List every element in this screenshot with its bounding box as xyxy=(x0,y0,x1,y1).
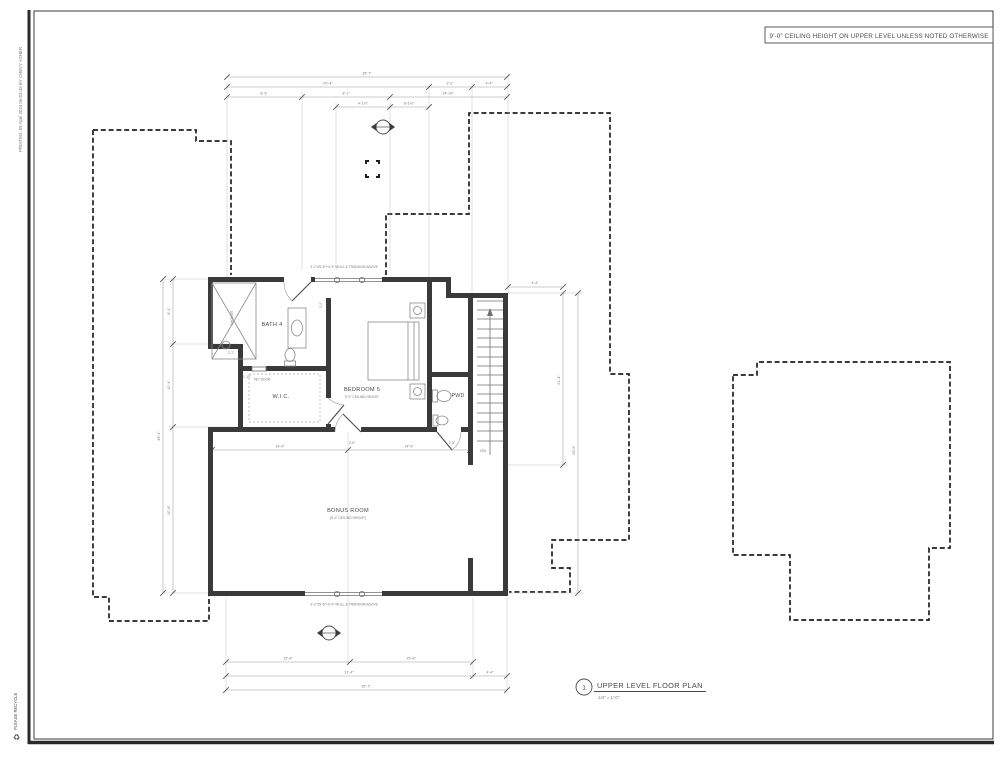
drawing-sheet: 9'-0" CEILING HEIGHT ON UPPER LEVEL UNLE… xyxy=(0,0,1000,768)
title-text: UPPER LEVEL FLOOR PLAN xyxy=(597,681,703,690)
dim-label: 10'-4" xyxy=(167,380,171,390)
wall-top-jamb xyxy=(311,277,315,282)
bath-vanity xyxy=(288,308,306,348)
room-label-bedroom5: BEDROOM 5 xyxy=(344,387,380,393)
stair-dn-label: DN xyxy=(480,448,486,453)
dim-label: 4'-4" xyxy=(531,281,539,285)
dim-label: 2'-2" xyxy=(319,302,323,308)
wall-stair-west xyxy=(468,293,473,444)
wall-bath-south-b xyxy=(266,366,328,371)
dim-label: 14'-10" xyxy=(442,92,454,96)
wall-landing-south xyxy=(468,591,508,596)
dim-label: 35'-7" xyxy=(362,72,372,76)
wall-top-bedroom xyxy=(382,277,450,282)
interior-dimension-row: 14'-0" 14'-6" xyxy=(209,445,473,453)
window-label-bottom: 3'-2"X5'-6"+4'-9" MULL & TRANSOM ABOVE xyxy=(310,603,379,607)
dashed-roof-outline xyxy=(93,113,629,621)
window-bottom-assembly: 3'-2"X5'-6"+4'-9" MULL & TRANSOM ABOVE xyxy=(305,591,382,606)
pet-door-label: PET DOOR xyxy=(254,378,271,382)
room-labels: BATH 4 W.I.C. BEDROOM 5 9'-0" CEILING HE… xyxy=(262,322,465,520)
wall-bath-south-a xyxy=(238,366,252,371)
attic-access-symbol xyxy=(366,161,379,177)
dim-label: 4'-1½" xyxy=(358,102,369,106)
title-block: 1 UPPER LEVEL FLOOR PLAN 1/4" = 1'-0" xyxy=(576,679,706,700)
wall-step-upper xyxy=(208,344,242,349)
wall-bonus-north-a xyxy=(243,427,335,432)
dim-label: 20'-4" xyxy=(323,82,333,86)
dim-label: 14'-0" xyxy=(275,445,285,449)
dim-label: 2'-8" xyxy=(449,441,455,445)
staircase: DN xyxy=(477,301,503,455)
ceiling-note-text: 9'-0" CEILING HEIGHT ON UPPER LEVEL UNLE… xyxy=(769,33,988,40)
pwd-sink xyxy=(433,415,448,426)
dim-label: 2'-8" xyxy=(349,441,355,445)
room-label-wic: W.I.C. xyxy=(272,394,289,400)
bath-toilet xyxy=(285,349,296,367)
dim-label: 8'-3" xyxy=(260,92,268,96)
wall-wic-west xyxy=(238,344,243,432)
dim-label: 4'-4" xyxy=(486,671,494,675)
wall-bonus-south-b xyxy=(382,591,473,596)
dim-label: 35'-7" xyxy=(361,685,371,689)
walls xyxy=(208,277,508,596)
recycle-icon: ♻ xyxy=(13,733,20,742)
wic-door xyxy=(328,398,344,424)
pwd-toilet xyxy=(433,390,452,402)
dim-label: 20'-8" xyxy=(167,505,171,515)
dim-label: 8'-1½" xyxy=(404,102,415,106)
window-top-assembly: 3'-2"X5'-6"+4'-9" MULL & TRANSOM ABOVE xyxy=(310,265,382,283)
room-label-bath4: BATH 4 xyxy=(262,322,283,328)
wall-bonus-north-b xyxy=(361,427,437,432)
shower-label: SHOWER xyxy=(230,310,234,325)
ceiling-note-box: 9'-0" CEILING HEIGHT ON UPPER LEVEL UNLE… xyxy=(765,27,993,43)
dim-label: 1'-10" xyxy=(243,375,251,379)
wall-bonus-south-a xyxy=(208,591,305,596)
window-label-top: 3'-2"X5'-6"+4'-9" MULL & TRANSOM ABOVE xyxy=(310,265,379,269)
wall-landing-west xyxy=(468,558,473,595)
dim-label: 39'-1" xyxy=(157,431,161,441)
dim-label: 15'-8" xyxy=(406,657,416,661)
wall-bedroom-east xyxy=(427,277,432,432)
dim-label: 8'-1" xyxy=(167,307,171,315)
stair-direction-arrow xyxy=(487,308,493,316)
bottom-dimension-chain: 15'-8" 15'-8" 31'-4" 4'-4" 35'-7" xyxy=(223,657,510,693)
left-dimension-chain: 39'-1" 8'-1" 10'-4" 20'-8" xyxy=(157,276,176,596)
recycle-note-text: PLEASE RECYCLE xyxy=(13,693,18,730)
extension-lines xyxy=(163,74,584,693)
printed-stamp: PRINTED: 09 April 2024 06:03:45 BY CHEVY… xyxy=(18,47,23,152)
wall-pwd-north xyxy=(432,372,473,377)
dim-label: 31'-4" xyxy=(344,671,354,675)
wall-stair-east xyxy=(503,293,508,595)
bath-entry-door xyxy=(284,282,311,301)
room-note-bedroom5: 9'-0" CEILING HEIGHT xyxy=(345,395,379,399)
dim-label: 3'-2" xyxy=(446,82,454,86)
wall-bonus-west xyxy=(208,427,213,596)
right-dimension-chain: 4'-4" 21'-4" 29'-6" xyxy=(505,281,581,596)
bedroom-door xyxy=(335,414,361,432)
dim-label: 21'-4" xyxy=(557,375,561,385)
floor-plan-canvas: 9'-0" CEILING HEIGHT ON UPPER LEVEL UNLE… xyxy=(0,0,1000,768)
dim-label: 15'-8" xyxy=(283,657,293,661)
section-marker-bottom xyxy=(317,626,341,640)
wall-stair-top xyxy=(446,293,508,298)
dim-label: 14'-6" xyxy=(404,445,414,449)
dim-label: 29'-6" xyxy=(572,445,576,455)
room-note-bonus: (9'-0" CEILING HEIGHT) xyxy=(330,516,366,520)
dim-label: 2'-7" xyxy=(228,351,234,355)
section-marker-top xyxy=(371,120,395,134)
top-dimension-chain: 35'-7" 20'-4" 3'-2" 4'-4" 8'-3" 8'-1" 14… xyxy=(224,72,510,110)
bed xyxy=(368,303,425,399)
wall-landing-north xyxy=(468,427,473,465)
wall-bath-bedroom xyxy=(326,298,331,398)
title-sheet-number: 1 xyxy=(582,685,586,692)
dim-label: 4'-4" xyxy=(485,82,493,86)
dashed-right-wing-outline xyxy=(733,362,950,620)
room-label-bonus: BONUS ROOM xyxy=(327,508,369,514)
title-scale: 1/4" = 1'-0" xyxy=(598,695,620,700)
dim-label: 8'-1" xyxy=(342,92,350,96)
wall-top-bath xyxy=(208,277,284,282)
wall-step-lower xyxy=(208,427,243,432)
recycle-logo: PLEASE RECYCLE ♻ xyxy=(13,693,20,742)
room-label-pwd: PWD xyxy=(451,393,464,399)
